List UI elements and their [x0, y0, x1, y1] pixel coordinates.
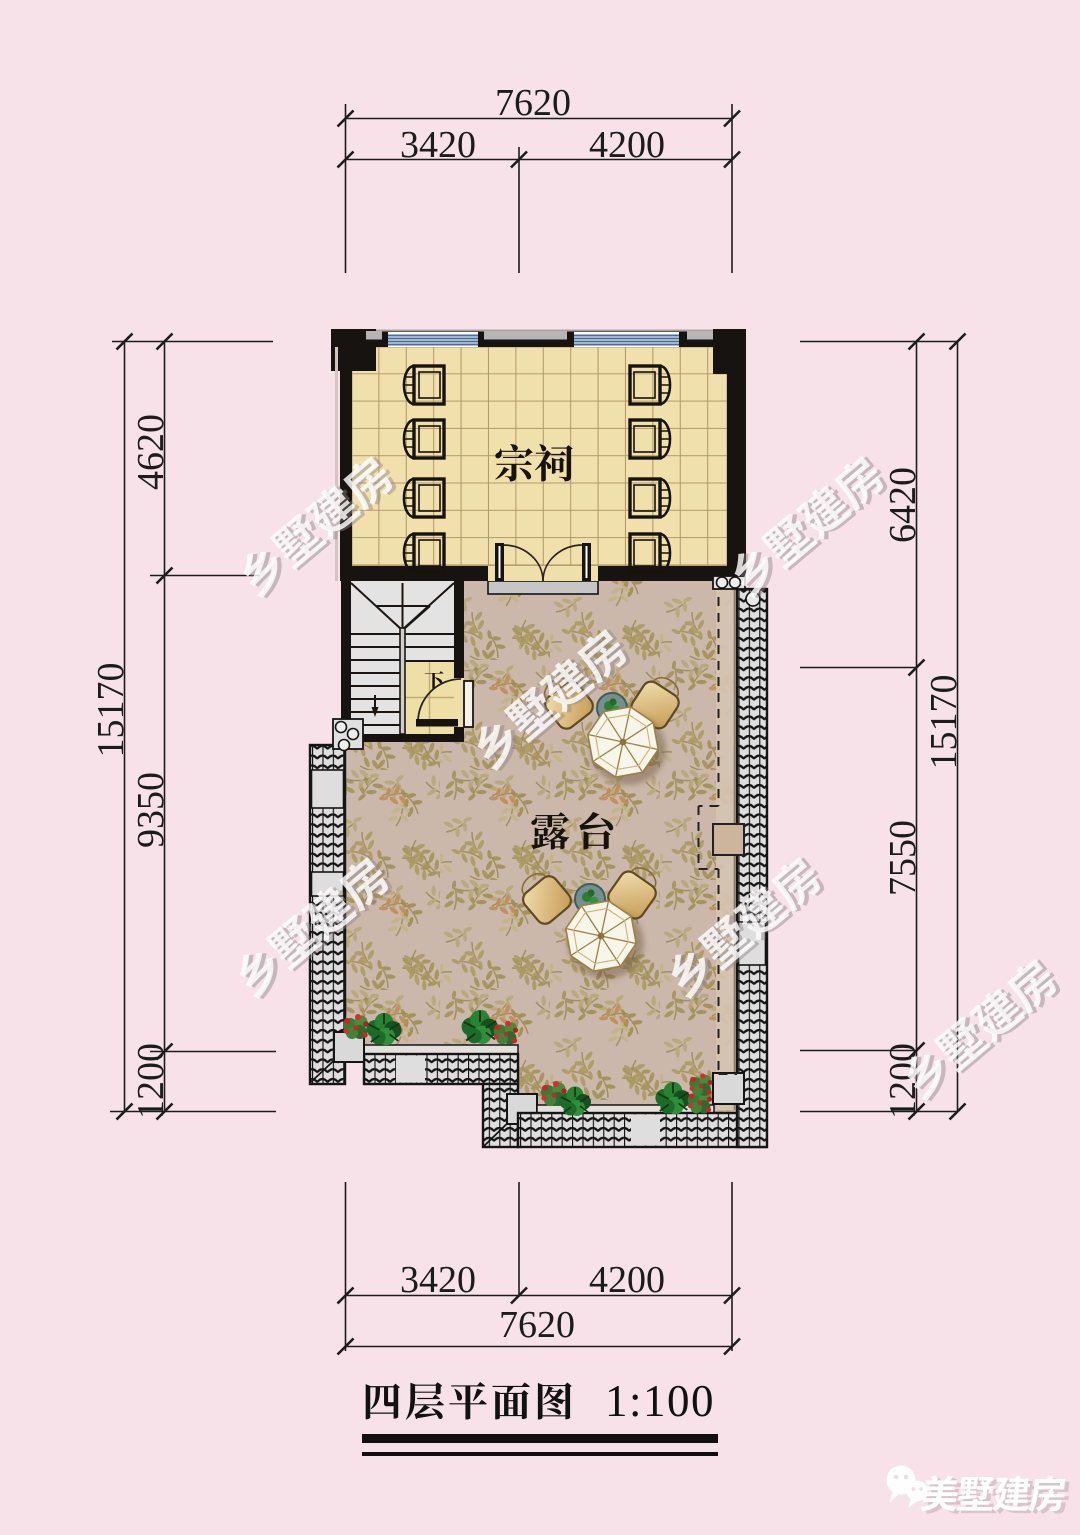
svg-text:7620: 7620 — [499, 1304, 575, 1346]
svg-text:3420: 3420 — [400, 1259, 476, 1301]
svg-text:15170: 15170 — [90, 663, 132, 758]
svg-text:7550: 7550 — [882, 820, 924, 896]
svg-text:4200: 4200 — [589, 1259, 665, 1301]
svg-text:4200: 4200 — [589, 124, 665, 166]
svg-text:3420: 3420 — [400, 124, 476, 166]
svg-text:4620: 4620 — [130, 414, 172, 490]
svg-text:1200: 1200 — [130, 1043, 172, 1119]
svg-text:7620: 7620 — [495, 82, 571, 124]
svg-text:9350: 9350 — [130, 772, 172, 848]
svg-text:1:100: 1:100 — [605, 1376, 715, 1426]
svg-text:15170: 15170 — [923, 675, 965, 770]
svg-text:6420: 6420 — [882, 467, 924, 543]
